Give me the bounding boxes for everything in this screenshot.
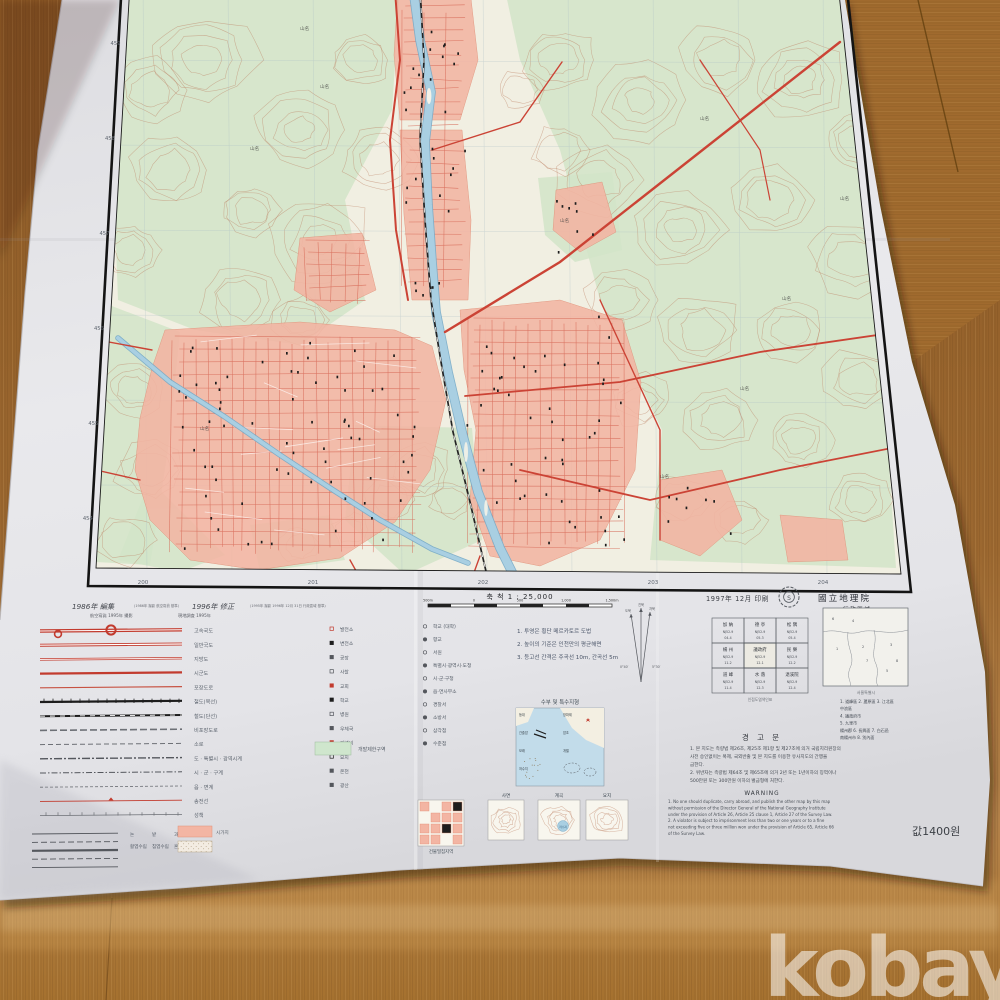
pattern-label: 활엽수림 <box>130 843 147 850</box>
map-place-label: 山名 <box>250 145 259 152</box>
index-cell-code: NJ52-9 <box>755 680 766 684</box>
pond-label: 저수지 <box>559 825 567 829</box>
edition-edit-note: (1986年 撮影 航空寫眞 基準) <box>134 603 180 608</box>
index-cell-code: 05-3 <box>756 636 763 640</box>
index-cell-code: NJ52-9 <box>787 630 798 634</box>
scale-tick-label: 0 <box>473 599 475 603</box>
legend-row-label: 철도(단선) <box>194 712 217 720</box>
agency-name: 國立地理院 <box>818 592 871 604</box>
warning-english-line: not exceeding five or three million won … <box>668 825 834 830</box>
edition-sub-right: 現地調査 1995年 <box>178 612 211 619</box>
bottom-grid-label: 203 <box>648 580 659 586</box>
edition-revise-note: (1995年 撮影 1996年 12月 31日 行政區域 基準) <box>250 603 326 608</box>
admin-map-number: 6 <box>832 617 834 621</box>
left-grid-label: 459 <box>111 41 121 47</box>
edition-sub-left: 航空寫眞 1995年 撮影 <box>90 612 133 619</box>
index-cell-name: 水 落 <box>755 671 766 678</box>
block-diagram-caption: 건물밀집지역 <box>429 848 453 855</box>
map-place-label: 山名 <box>300 25 309 32</box>
admin-list-line: 中浪區 <box>840 705 852 711</box>
admin-map-number: 8 <box>896 659 898 663</box>
point-symbol-label: 온천 <box>340 768 349 775</box>
point-symbol-label: 삼각점 <box>433 727 446 734</box>
index-cell-name: 德 亭 <box>755 621 766 628</box>
index-cell-code: NJ52-9 <box>787 655 798 659</box>
index-cell-code: 12-2 <box>788 661 795 665</box>
point-symbol-label: 소방서 <box>433 714 446 721</box>
map-place-label: 山名 <box>700 115 709 122</box>
point-symbol-label: 교회 <box>340 683 349 690</box>
terrain-box-label: 계곡 <box>555 792 563 799</box>
index-cell-code: NJ52-9 <box>723 655 734 659</box>
photo-of-topographic-map: 山名山名山名山名山名山名山名山名山名山名 2002012022032044594… <box>0 0 1000 1000</box>
water-diagram-label: 암초 <box>563 730 569 735</box>
index-cell-code: NJ52-9 <box>723 630 734 634</box>
index-cell-code: NJ52-9 <box>787 680 798 684</box>
left-grid-label: 457 <box>99 231 109 237</box>
map-place-label: 山名 <box>660 473 669 480</box>
declination-label: 진북 <box>638 602 644 607</box>
price-tag: 값1400원 <box>912 825 960 838</box>
legend-row-label: 지방도 <box>194 655 209 663</box>
index-cell-name: 楊 州 <box>723 646 733 653</box>
declination-value: 0°40′ <box>620 665 629 669</box>
point-symbol-label: 학교 <box>340 697 349 704</box>
edition-revise: 1996年 修正 <box>192 602 235 611</box>
pattern-label: 침엽수림 <box>152 843 169 850</box>
map-place-label: 山名 <box>560 217 569 224</box>
legend-row-label: 도 · 특별시 · 광역시계 <box>194 754 242 762</box>
admin-list-line: 楊州郡 6. 長興面 7. 白石邑 <box>840 727 889 733</box>
admin-list-line: 南楊州市 8. 別內面 <box>840 734 874 740</box>
admin-list-line: 1. 道峰區 2. 蘆原區 3. 江北區 <box>840 698 894 704</box>
map-place-label: 山名 <box>320 83 329 90</box>
index-cell-name: 加 納 <box>723 621 734 628</box>
warning-english-title: WARNING <box>744 791 779 797</box>
warning-korean-line: 금한다. <box>690 761 704 768</box>
admin-map-number: 5 <box>886 669 888 673</box>
pattern-label: 논 <box>130 832 134 838</box>
scale-tick-label: 500 <box>517 599 523 603</box>
declination-label: 도북 <box>625 608 631 613</box>
terrain-box-label: 사면 <box>502 792 510 799</box>
point-symbol-label: 광산 <box>340 782 349 789</box>
legend-row-label: 고속국도 <box>194 627 213 635</box>
legend-symbol-rail1 <box>40 715 182 716</box>
index-cell-name: 松 隅 <box>787 621 798 628</box>
sand-swatch <box>178 841 212 852</box>
legend-row-label: 일반국도 <box>194 641 213 649</box>
legend-row-label: 읍 · 면계 <box>194 783 213 791</box>
index-cell-code: NJ52-9 <box>723 680 734 684</box>
point-symbol-label: 수준점 <box>433 740 446 747</box>
index-cell-code: 05-4 <box>788 636 795 640</box>
point-symbol-label: 경찰서 <box>433 701 446 708</box>
admin-map-number: 1 <box>836 647 838 651</box>
legend-row-label: 송전선 <box>194 797 209 805</box>
legend-row-label: 철도(복선) <box>194 698 217 706</box>
admin-map-number: 4 <box>852 619 854 623</box>
legend-row-label: 소로 <box>194 741 204 748</box>
admin-map-number: 7 <box>866 659 868 663</box>
index-cell-name: 退溪院 <box>785 671 799 678</box>
declination-label: 자북 <box>649 606 655 611</box>
warning-korean-line: 2. 위반자는 측량법 제64조 및 제65조에 의거 2년 또는 1년이하의 … <box>690 769 837 776</box>
edition-edit: 1986年 編集 <box>72 602 115 611</box>
warning-english-line: 1. No one should duplicate, carry abroad… <box>668 799 831 804</box>
water-diagram-label: 간출암 <box>519 730 528 735</box>
index-cell-name: 議政府 <box>753 646 767 653</box>
point-symbol-label: 우체국 <box>340 725 354 732</box>
point-symbol-label: 학교 (대학) <box>433 623 456 630</box>
point-symbol-label: 변전소 <box>340 640 354 647</box>
index-cell-name: 道 峰 <box>723 671 734 678</box>
warning-korean-line: 1. 본 지도는 측량법 제26조, 제25조 제1항 및 제27조에 의거 국… <box>690 745 841 752</box>
greenbelt-label: 개발제한구역 <box>358 746 386 753</box>
point-symbol-label: 서원 <box>433 649 442 656</box>
warning-korean-line: 사전 승인없이는 복제, 국외반출 및 본 지도를 이용한 유사지도의 간행을 <box>690 753 827 760</box>
map-place-label: 山名 <box>200 425 209 432</box>
bottom-grid-label: 204 <box>818 580 829 586</box>
index-cell-code: 12-4 <box>788 686 795 690</box>
legend-row-label: 비포장도로 <box>194 726 218 734</box>
water-diagram-label: 모래 <box>519 748 525 753</box>
legend-row-label: 포장도로 <box>194 684 213 691</box>
printed-date: 1997年 12月 印刷 <box>706 594 769 603</box>
admin-map-number: 3 <box>890 643 892 647</box>
index-cell-code: 12-1 <box>756 661 763 665</box>
point-symbol-label: 특별시·광역시·도청 <box>433 662 471 669</box>
map-place-label: 山名 <box>782 295 791 302</box>
left-grid-label: 454 <box>83 516 94 522</box>
scale-tick-label: 1,500m <box>605 599 619 603</box>
legend-symbol-road2 <box>40 644 182 645</box>
bottom-grid-label: 202 <box>478 580 489 586</box>
point-symbol-label: 사찰 <box>340 669 349 676</box>
water-diagram: 등대방파제간출암암초모래개펄저수지 <box>516 708 604 786</box>
builtup-swatch <box>178 826 212 837</box>
water-diagram-label: 등대 <box>519 712 525 717</box>
index-cell-code: NJ52-9 <box>755 630 766 634</box>
admin-list-line: 5. 九里市 <box>840 720 857 726</box>
index-cell-code: 04-4 <box>724 636 731 640</box>
bottom-grid-label: 200 <box>138 580 149 586</box>
legend-row-label: 시군도 <box>194 670 209 677</box>
water-diagram-label: 개펄 <box>563 748 569 753</box>
point-symbol-label: 읍·면사무소 <box>433 688 457 695</box>
warning-korean-line: 500만원 또는 300만원 이하의 벌금형에 처한다. <box>690 777 784 784</box>
terrain-box-label: 요지 <box>603 792 611 799</box>
warning-english-line: under the provision of Article 26, Artic… <box>668 812 832 817</box>
point-symbol-label: 병원 <box>340 711 349 718</box>
admin-map-number: 2 <box>862 645 864 649</box>
point-symbol-label: 시·군·구청 <box>433 676 454 682</box>
admin-map-caption: 서울특별시 <box>857 689 876 695</box>
projection-note: 3. 등고선 간격은 주곡선 10m, 간곡선 5m <box>517 653 618 661</box>
index-cell-code: 11-2 <box>724 661 731 665</box>
svg-text:S: S <box>787 595 791 602</box>
topographic-map: 山名山名山名山名山名山名山名山名山名山名 2002012022032044594… <box>83 0 911 592</box>
index-cell-name: 民 樂 <box>787 646 798 653</box>
map-place-label: 山名 <box>740 385 749 392</box>
warning-title: 경 고 문 <box>742 733 782 742</box>
point-symbol-label: 향교 <box>433 636 442 643</box>
left-grid-label: 458 <box>105 136 115 142</box>
scale-tick-label: 1,000 <box>561 599 571 603</box>
legend-row-label: 성책 <box>194 811 204 819</box>
left-grid-label: 456 <box>94 326 104 332</box>
warning-english-line: without permission of the Director Gener… <box>668 805 826 810</box>
index-cell-code: NJ52-9 <box>755 655 766 659</box>
admin-district-map: 12345678서울특별시 <box>823 608 908 695</box>
legend-row-label: 시 · 군 · 구계 <box>194 769 223 777</box>
greenbelt-swatch <box>315 742 351 755</box>
left-grid-label: 455 <box>88 421 98 427</box>
legend-symbol-roadthick <box>40 672 182 673</box>
legend-symbol-road2t <box>40 658 182 659</box>
point-symbol-label: 발전소 <box>340 626 354 633</box>
scale-tick-label: 500m <box>423 599 433 603</box>
map-place-label: 山名 <box>840 195 849 202</box>
bottom-grid-label: 201 <box>308 580 319 586</box>
point-symbol-label: 공장 <box>340 654 349 661</box>
builtup-label: 시가지 <box>216 829 229 836</box>
kobay-watermark: kobay <box>764 921 1000 1000</box>
water-diagram-label: 방파제 <box>563 712 572 717</box>
water-diagram-title: 수부 및 특수지형 <box>541 698 579 706</box>
index-cell-code: 11-4 <box>724 686 731 690</box>
index-grid-caption: 인접도엽색인표 <box>748 697 773 702</box>
index-cell-code: 12-3 <box>756 686 763 690</box>
projection-note: 1. 투영은 횡단 메르카토르 도법 <box>517 627 591 635</box>
urban-area <box>780 515 848 562</box>
water-diagram-label: 저수지 <box>519 766 528 771</box>
warning-english-line: 2. A violator is subject to imprisonment… <box>668 818 825 823</box>
projection-note: 2. 높이의 기준은 인천만의 평균해면 <box>517 640 602 648</box>
warning-english-line: of the Survey Law. <box>668 831 705 836</box>
admin-list-line: 4. 議政府市 <box>840 712 861 718</box>
declination-value: 5°30′ <box>652 665 661 669</box>
